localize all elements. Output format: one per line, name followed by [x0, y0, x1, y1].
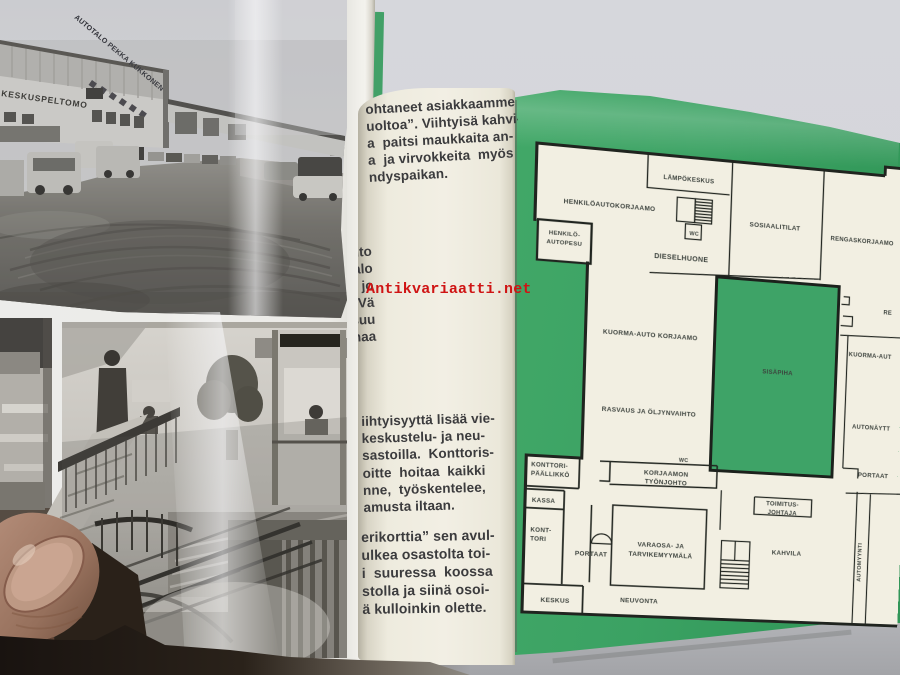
- svg-text:KONT-: KONT-: [530, 527, 551, 534]
- svg-text:KAHVILA: KAHVILA: [772, 550, 802, 558]
- svg-text:WC: WC: [679, 458, 689, 464]
- svg-text:WC: WC: [689, 231, 699, 237]
- svg-text:TORI: TORI: [530, 536, 546, 543]
- svg-text:RE: RE: [883, 310, 892, 317]
- svg-text:KASSA: KASSA: [532, 497, 556, 505]
- svg-text:KESKUS: KESKUS: [540, 597, 569, 605]
